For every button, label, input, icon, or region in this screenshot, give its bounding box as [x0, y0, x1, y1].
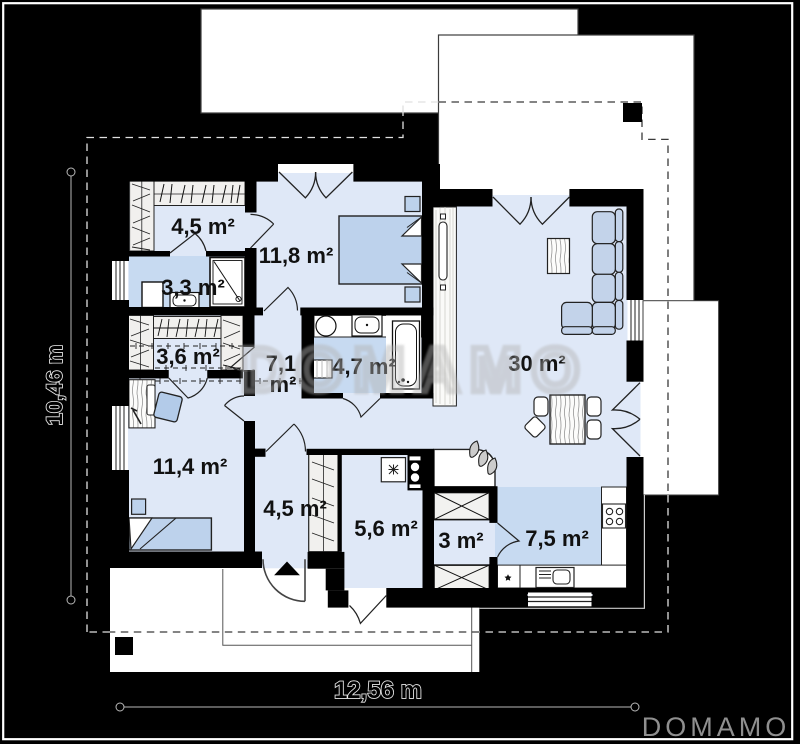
svg-text:4,5 m²: 4,5 m²	[171, 214, 235, 239]
svg-text:11,4 m²: 11,4 m²	[153, 454, 228, 479]
svg-text:3 m²: 3 m²	[438, 528, 483, 553]
svg-text:3,3 m²: 3,3 m²	[161, 275, 225, 300]
svg-text:DOMAMO: DOMAMO	[642, 712, 791, 742]
svg-text:12,56 m: 12,56 m	[334, 677, 422, 704]
svg-text:11,8 m²: 11,8 m²	[259, 243, 334, 268]
svg-text:4,5 m²: 4,5 m²	[263, 496, 327, 521]
svg-text:5,6 m²: 5,6 m²	[354, 516, 418, 541]
svg-text:7,5 m²: 7,5 m²	[525, 526, 589, 551]
svg-text:10,46 m: 10,46 m	[42, 345, 67, 426]
svg-text:DOMAMO: DOMAMO	[240, 336, 589, 405]
svg-text:3,6 m²: 3,6 m²	[156, 344, 220, 369]
